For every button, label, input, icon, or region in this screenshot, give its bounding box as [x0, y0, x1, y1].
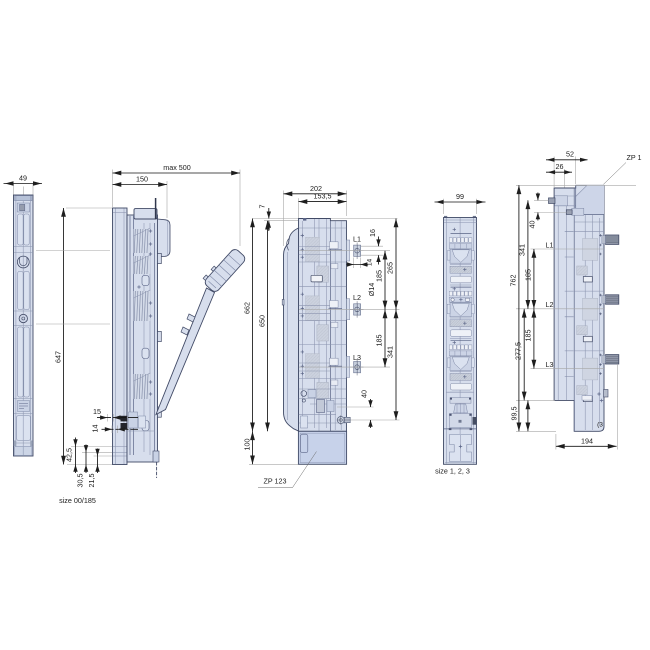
- svg-text:185: 185: [375, 270, 384, 282]
- svg-text:99: 99: [456, 192, 464, 201]
- svg-text:185: 185: [375, 335, 384, 347]
- svg-text:L3: L3: [353, 353, 361, 362]
- svg-text:26: 26: [556, 162, 564, 171]
- svg-text:21,5: 21,5: [87, 474, 96, 488]
- svg-text:100: 100: [243, 439, 252, 451]
- svg-text:14: 14: [91, 425, 100, 433]
- svg-text:194: 194: [581, 436, 593, 445]
- svg-text:L1: L1: [353, 235, 361, 244]
- svg-text:L2: L2: [546, 300, 554, 309]
- svg-text:ZP 1: ZP 1: [626, 153, 641, 162]
- svg-text:40: 40: [360, 390, 369, 398]
- svg-text:size 1, 2, 3: size 1, 2, 3: [435, 467, 470, 476]
- svg-text:14: 14: [367, 259, 374, 267]
- svg-text:L1: L1: [546, 240, 554, 249]
- svg-text:16: 16: [368, 229, 377, 237]
- svg-text:ZP 123: ZP 123: [263, 477, 286, 486]
- svg-text:Ø14: Ø14: [367, 283, 376, 297]
- svg-text:max 500: max 500: [163, 163, 191, 172]
- svg-text:15: 15: [93, 407, 101, 416]
- svg-text:762: 762: [509, 275, 518, 287]
- svg-text:7: 7: [258, 205, 267, 209]
- svg-text:265: 265: [386, 262, 395, 274]
- svg-text:277,5: 277,5: [514, 342, 523, 360]
- svg-text:341: 341: [386, 346, 395, 358]
- svg-text:30,5: 30,5: [76, 474, 85, 488]
- svg-text:153,5: 153,5: [314, 192, 332, 201]
- svg-text:662: 662: [243, 302, 252, 314]
- svg-text:49: 49: [19, 174, 27, 183]
- svg-text:647: 647: [54, 351, 63, 363]
- svg-text:(3: (3: [597, 422, 603, 429]
- svg-text:size 00/185: size 00/185: [59, 496, 96, 505]
- svg-text:52: 52: [566, 150, 574, 159]
- svg-text:650: 650: [258, 315, 267, 327]
- svg-text:42,5: 42,5: [65, 448, 74, 462]
- svg-text:L3: L3: [546, 360, 554, 369]
- svg-text:185: 185: [523, 330, 532, 342]
- svg-text:L2: L2: [353, 293, 361, 302]
- svg-text:185: 185: [523, 269, 532, 281]
- svg-text:40: 40: [527, 221, 536, 229]
- svg-text:150: 150: [136, 175, 148, 184]
- svg-text:99,5: 99,5: [510, 407, 519, 421]
- svg-text:341: 341: [518, 244, 527, 256]
